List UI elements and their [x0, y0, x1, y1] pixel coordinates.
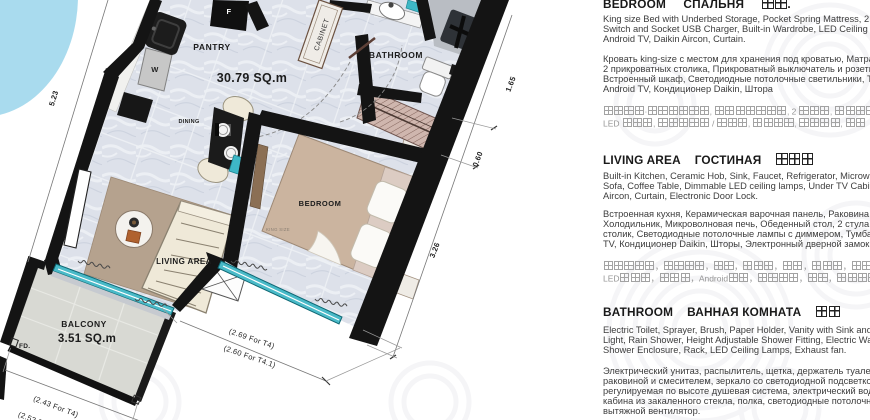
svg-text:KING SIZE: KING SIZE	[266, 227, 290, 232]
svg-text:F: F	[227, 7, 232, 16]
svg-text:BATHROOM: BATHROOM	[369, 50, 423, 60]
svg-text:(2.43 For T4): (2.43 For T4)	[32, 394, 80, 420]
svg-text:W: W	[151, 65, 159, 74]
svg-text:3.26: 3.26	[428, 241, 442, 259]
svg-text:PANTRY: PANTRY	[193, 42, 231, 52]
svg-text:LIVING AREA: LIVING AREA	[156, 257, 212, 266]
svg-text:1.65: 1.65	[504, 75, 518, 93]
svg-text:30.79 SQ.m: 30.79 SQ.m	[217, 71, 287, 85]
svg-text:BALCONY: BALCONY	[61, 319, 107, 329]
svg-text:DINING: DINING	[178, 119, 199, 125]
svg-text:0.60: 0.60	[471, 150, 485, 168]
svg-text:FD.: FD.	[19, 343, 30, 350]
svg-text:3.51 SQ.m: 3.51 SQ.m	[58, 333, 116, 345]
svg-text:5.23: 5.23	[47, 89, 60, 107]
svg-text:BEDROOM: BEDROOM	[299, 199, 342, 208]
